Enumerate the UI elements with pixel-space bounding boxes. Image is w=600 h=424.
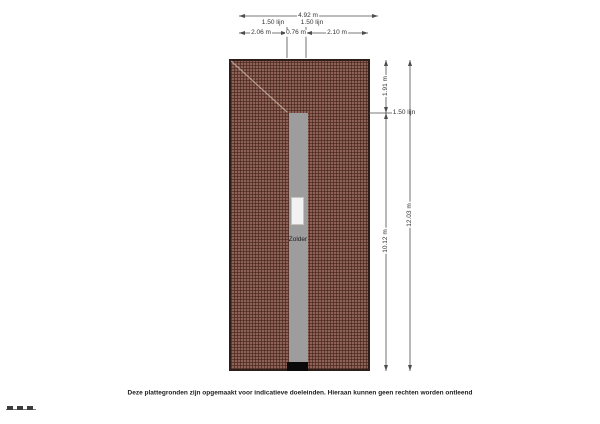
- dimension-lines: [0, 0, 600, 424]
- right-150-line-label: 1.50 lijn: [392, 110, 416, 117]
- line-150-right-label: 1.50 lijn: [300, 20, 324, 27]
- scale-bar: [6, 403, 38, 413]
- right-total-dim-label: 12.03 m: [407, 202, 414, 228]
- right-inner-dimension-line: [384, 60, 388, 371]
- top-seg-right-dim-label: 2.10 m: [326, 30, 348, 37]
- disclaimer-text: Deze plattegronden zijn opgemaakt voor i…: [128, 390, 473, 397]
- right-lower-dim-label: 10.12 m: [383, 228, 390, 254]
- roof-hip-diagonal: [231, 61, 287, 112]
- floorplan-canvas: Zolder: [0, 0, 600, 424]
- scale-bar-segment: [17, 406, 23, 410]
- top-seg-mid-dim-label: 0.76 m: [285, 30, 307, 37]
- top-seg-left-dim-label: 2.06 m: [250, 30, 272, 37]
- scale-bar-segment: [27, 406, 33, 410]
- scale-bar-segment: [7, 406, 13, 410]
- right-upper-dim-label: 1.91 m: [383, 75, 390, 97]
- line-150-left-label: 1.50 lijn: [261, 20, 285, 27]
